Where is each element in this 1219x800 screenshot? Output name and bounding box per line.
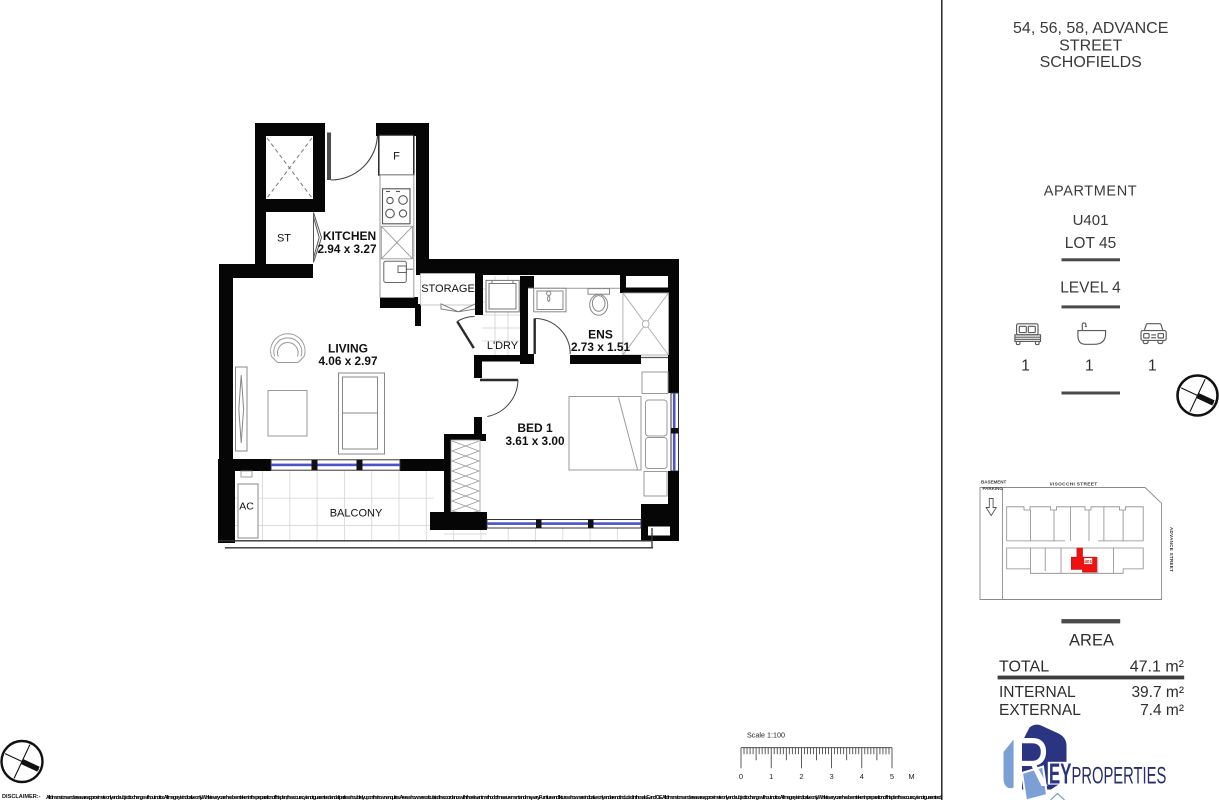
svg-text:INTERNAL: INTERNAL [999,684,1076,701]
svg-text:1: 1 [769,772,773,781]
svg-text:APARTMENT: APARTMENT [1044,184,1137,200]
svg-text:AC: AC [239,501,254,513]
svg-text:2.73 x 1.51: 2.73 x 1.51 [571,340,630,354]
svg-text:LEVEL 4: LEVEL 4 [1060,280,1121,297]
svg-text:U401: U401 [1073,212,1109,229]
svg-text:Scale 1:100: Scale 1:100 [747,731,785,740]
svg-text:LOT 45: LOT 45 [1065,235,1116,252]
svg-text:ADVANCE STREET: ADVANCE STREET [1169,527,1174,572]
svg-text:1: 1 [1021,357,1030,374]
svg-text:39.7 m²: 39.7 m² [1131,684,1184,701]
svg-text:KITCHEN: KITCHEN [323,229,376,243]
svg-text:BALCONY: BALCONY [330,507,383,519]
svg-text:PARKING: PARKING [983,486,1004,491]
svg-text:1: 1 [1148,357,1157,374]
svg-text:4: 4 [860,772,864,781]
svg-text:STORAGE: STORAGE [421,283,475,295]
svg-text:BED 1: BED 1 [517,421,553,435]
svg-text:M: M [908,772,914,781]
svg-text:2: 2 [799,772,803,781]
svg-text:BASEMENT: BASEMENT [981,480,1007,485]
svg-text:5: 5 [890,772,894,781]
svg-text:PROPERTIES: PROPERTIES [1072,763,1167,789]
svg-text:All dimensions and areas are a: All dimensions and areas are approximate… [46,795,943,800]
svg-text:TOTAL: TOTAL [999,659,1049,676]
svg-text:EY: EY [1049,759,1072,791]
svg-text:F: F [393,151,400,163]
svg-text:EXTERNAL: EXTERNAL [999,702,1081,719]
svg-text:AREA: AREA [1069,631,1114,649]
svg-text:DISCLAIMER:-: DISCLAIMER:- [2,794,41,800]
svg-text:0: 0 [739,772,743,781]
svg-text:3.61 x 3.00: 3.61 x 3.00 [505,434,564,448]
svg-text:3: 3 [830,772,834,781]
svg-text:R: R [1010,724,1050,800]
svg-text:54, 56, 58, ADVANCE: 54, 56, 58, ADVANCE [1013,20,1168,37]
svg-text:47.1 m²: 47.1 m² [1130,659,1185,676]
svg-text:2.94 x 3.27: 2.94 x 3.27 [317,242,376,256]
svg-text:L'DRY: L'DRY [487,340,519,352]
svg-text:ST: ST [277,233,291,245]
svg-text:VISOCCHI STREET: VISOCCHI STREET [1050,482,1098,488]
svg-text:401: 401 [1084,559,1092,564]
svg-text:SCHOFIELDS: SCHOFIELDS [1040,54,1142,71]
svg-text:STREET: STREET [1059,37,1122,54]
svg-text:1: 1 [1085,357,1094,374]
svg-text:7.4 m²: 7.4 m² [1140,702,1184,719]
svg-text:4.06 x 2.97: 4.06 x 2.97 [318,354,377,368]
